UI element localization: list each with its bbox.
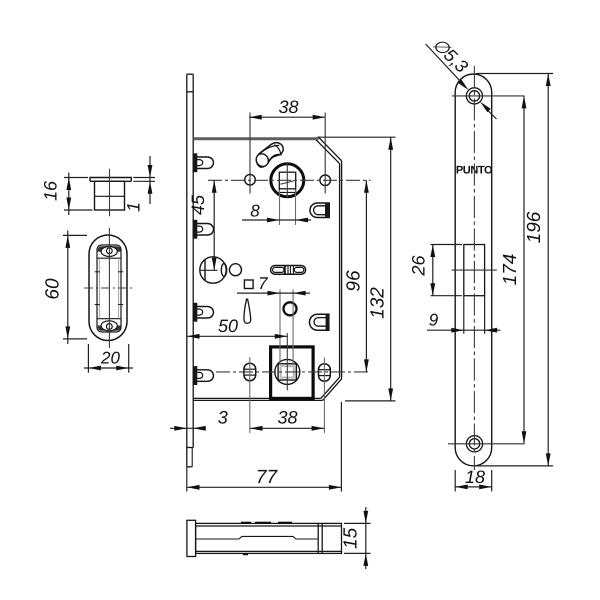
svg-text:9: 9 xyxy=(429,311,439,330)
svg-text:45: 45 xyxy=(188,194,208,215)
svg-text:20: 20 xyxy=(100,349,120,368)
svg-text:77: 77 xyxy=(256,467,279,488)
svg-text:38: 38 xyxy=(277,408,297,428)
svg-text:7: 7 xyxy=(258,274,268,293)
svg-text:26: 26 xyxy=(409,255,429,277)
svg-text:38: 38 xyxy=(278,97,298,117)
svg-text:1: 1 xyxy=(124,202,144,212)
svg-text:16: 16 xyxy=(41,180,61,201)
svg-text:18: 18 xyxy=(465,467,485,487)
svg-text:8: 8 xyxy=(250,202,260,221)
svg-text:60: 60 xyxy=(43,278,64,300)
svg-text:15: 15 xyxy=(341,527,362,549)
svg-text:96: 96 xyxy=(344,270,365,292)
svg-text:3: 3 xyxy=(218,408,228,428)
svg-text:196: 196 xyxy=(524,211,545,243)
svg-text:50: 50 xyxy=(218,316,238,336)
svg-text:132: 132 xyxy=(368,287,389,319)
svg-text:174: 174 xyxy=(500,254,521,286)
